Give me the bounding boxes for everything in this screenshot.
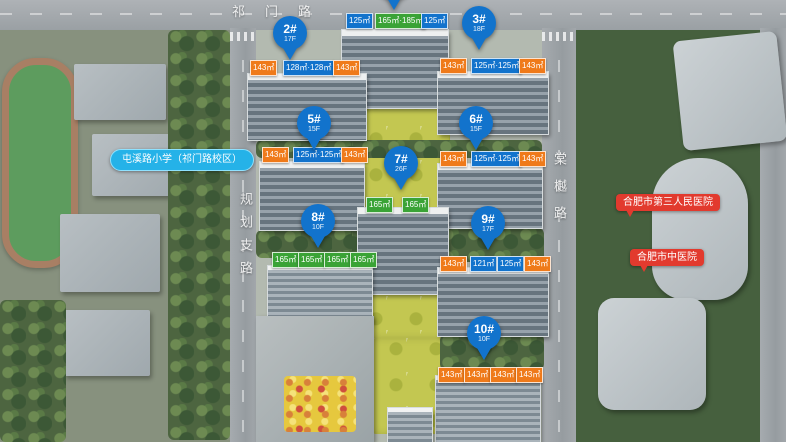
unit-size-label: 143㎡ bbox=[464, 367, 491, 383]
pin-floors: 26F bbox=[395, 166, 407, 173]
pin-head: 3# 18F bbox=[462, 6, 496, 40]
unit-size-label: 165㎡ bbox=[324, 252, 351, 268]
crosswalk bbox=[542, 32, 576, 41]
pin-floors: 17F bbox=[482, 226, 494, 233]
lane-marking bbox=[558, 60, 560, 440]
trees bbox=[168, 30, 230, 440]
pin-head: 6# 15F bbox=[459, 106, 493, 140]
pin-tail bbox=[283, 48, 297, 60]
trees bbox=[0, 300, 66, 442]
unit-size-label: 125㎡·125㎡ bbox=[471, 58, 522, 74]
kindergarten-playground bbox=[284, 376, 356, 432]
unit-size-label: 143㎡ bbox=[438, 367, 465, 383]
pin-floors: 10F bbox=[478, 336, 490, 343]
pin-tail bbox=[481, 238, 495, 250]
building-pin-9: 9# 17F bbox=[470, 206, 506, 250]
building-pin-3: 3# 18F bbox=[461, 6, 497, 50]
unit-size-label: 125㎡ bbox=[346, 13, 373, 29]
building-pin-10: 10# 10F bbox=[466, 316, 502, 360]
unit-size-label: 165㎡ bbox=[298, 252, 325, 268]
crosswalk bbox=[230, 32, 256, 41]
unit-size-label: 143㎡ bbox=[524, 256, 551, 272]
pin-floors: 10F bbox=[312, 224, 324, 231]
aerial-masterplan-rendering: 125㎡ 165㎡·185㎡ 125㎡ 143㎡ 128㎡·128㎡ 143㎡ … bbox=[0, 0, 786, 442]
unit-size-label: 143㎡ bbox=[440, 58, 467, 74]
pin-tail bbox=[311, 236, 325, 248]
pin-id: 6# bbox=[469, 113, 482, 125]
unit-size-label: 128㎡·128㎡ bbox=[283, 60, 334, 76]
unit-size-label: 125㎡ bbox=[421, 13, 448, 29]
unit-size-label: 125㎡·125㎡ bbox=[471, 151, 522, 167]
unit-size-label: 143㎡ bbox=[250, 60, 277, 76]
unit-size-label: 143㎡ bbox=[519, 58, 546, 74]
building-pin-5: 5# 15F bbox=[296, 106, 332, 150]
building-pin-8: 8# 10F bbox=[300, 204, 336, 248]
pin-id: 10# bbox=[474, 323, 494, 335]
pin-id: 5# bbox=[307, 113, 320, 125]
hospital-building bbox=[598, 298, 706, 410]
unit-size-label: 143㎡ bbox=[333, 60, 360, 76]
lowrise-10 bbox=[436, 376, 540, 442]
office-building bbox=[673, 31, 786, 151]
pin-id: 7# bbox=[394, 153, 407, 165]
pin-floors: 15F bbox=[470, 126, 482, 133]
unit-size-label: 143㎡ bbox=[440, 151, 467, 167]
pin-tail bbox=[394, 178, 408, 190]
unit-size-label: 143㎡ bbox=[516, 367, 543, 383]
building-pin-cut bbox=[376, 0, 412, 10]
school-building bbox=[60, 214, 160, 292]
pin-floors: 15F bbox=[308, 126, 320, 133]
road-label-right: 棠樾路 bbox=[550, 152, 569, 233]
building-pin-2: 2# 17F bbox=[272, 16, 308, 60]
unit-size-label: 143㎡ bbox=[440, 256, 467, 272]
unit-size-label: 165㎡ bbox=[350, 252, 377, 268]
unit-size-label: 143㎡ bbox=[341, 147, 368, 163]
pin-head: 7# 26F bbox=[384, 146, 418, 180]
pin-id: 9# bbox=[481, 213, 494, 225]
hospital-callout-2: 合肥市中医院 bbox=[630, 249, 704, 266]
pin-tail bbox=[387, 0, 401, 10]
unit-size-label: 125㎡ bbox=[497, 256, 524, 272]
unit-size-label: 165㎡ bbox=[272, 252, 299, 268]
pin-tail bbox=[307, 138, 321, 150]
unit-size-label: 121㎡ bbox=[470, 256, 497, 272]
hospital-callout-1: 合肥市第三人民医院 bbox=[616, 194, 720, 211]
school-callout: 屯溪路小学（祁门路校区） bbox=[110, 149, 254, 171]
pin-head: 5# 15F bbox=[297, 106, 331, 140]
school-building bbox=[64, 310, 150, 376]
pin-id: 8# bbox=[311, 211, 324, 223]
unit-size-label: 143㎡ bbox=[262, 147, 289, 163]
pin-floors: 17F bbox=[284, 36, 296, 43]
pin-head: 8# 10F bbox=[301, 204, 335, 238]
hospital-building bbox=[652, 158, 748, 300]
road-label-left: 规划支路 bbox=[236, 192, 255, 284]
unit-size-label: 165㎡·185㎡ bbox=[375, 13, 426, 29]
unit-size-label: 143㎡ bbox=[490, 367, 517, 383]
pin-tail bbox=[472, 38, 486, 50]
unit-size-label: 165㎡ bbox=[366, 197, 393, 213]
pin-tail bbox=[469, 138, 483, 150]
unit-size-label: 165㎡ bbox=[402, 197, 429, 213]
pin-head: 9# 17F bbox=[471, 206, 505, 240]
pin-head: 2# 17F bbox=[273, 16, 307, 50]
pin-id: 2# bbox=[283, 23, 296, 35]
kindergarten bbox=[256, 316, 374, 442]
pin-id: 3# bbox=[472, 13, 485, 25]
school-building bbox=[74, 64, 166, 120]
pin-tail bbox=[477, 348, 491, 360]
building-pin-6: 6# 15F bbox=[458, 106, 494, 150]
unit-size-label: 143㎡ bbox=[519, 151, 546, 167]
building-pin-7: 7# 26F bbox=[383, 146, 419, 190]
pin-head: 10# 10F bbox=[467, 316, 501, 350]
lowrise-8 bbox=[268, 266, 372, 322]
pin-floors: 18F bbox=[473, 26, 485, 33]
small-building bbox=[388, 408, 432, 442]
